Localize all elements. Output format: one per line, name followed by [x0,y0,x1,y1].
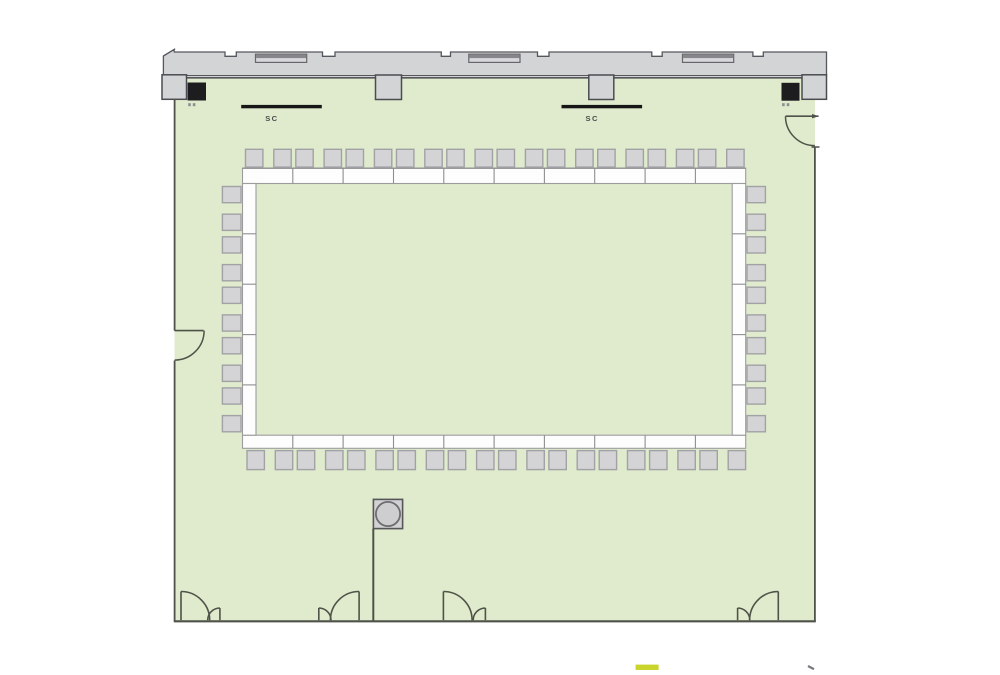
svg-text:SC: SC [586,114,599,123]
svg-text:SC: SC [265,114,278,123]
